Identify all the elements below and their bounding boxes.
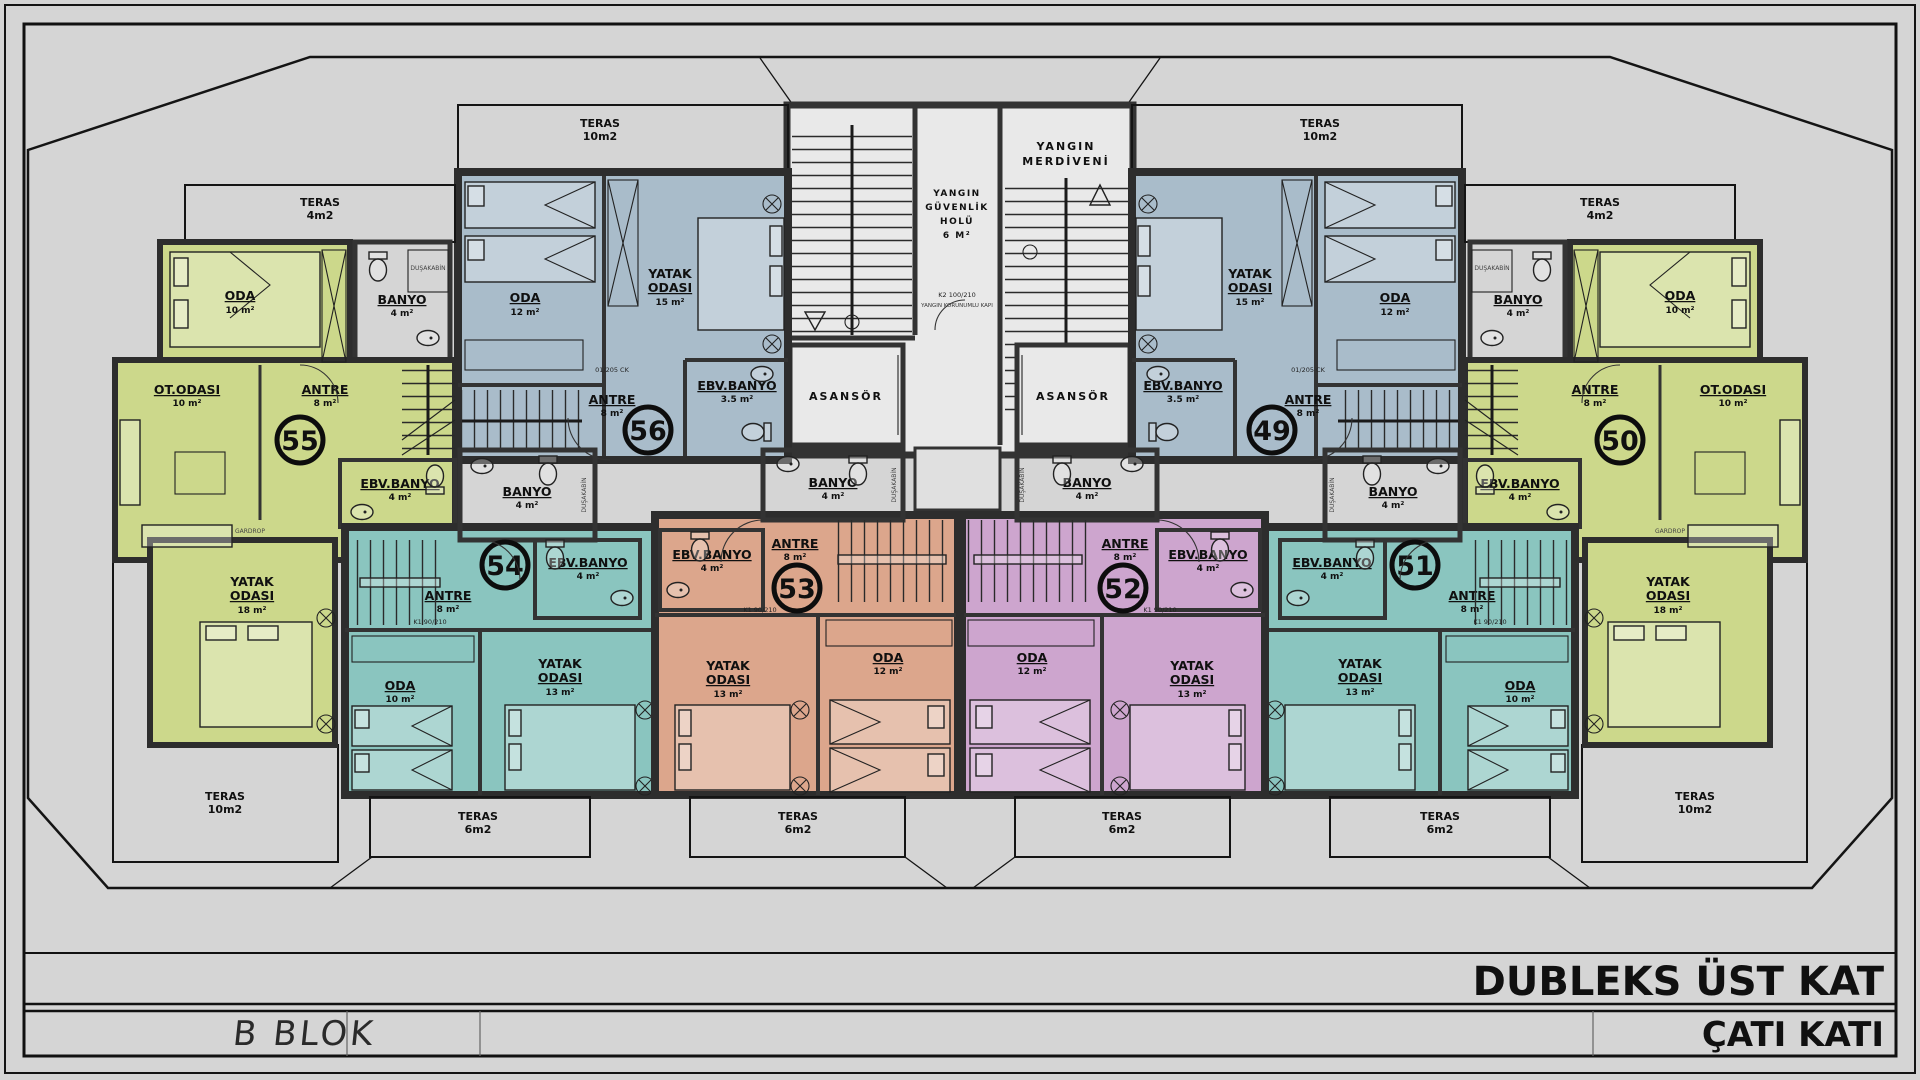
elevator-right-label: ASANSÖR	[1036, 389, 1110, 403]
apt50-antre-area: 8 m²	[1584, 399, 1607, 409]
apt54-teras-area: 6m2	[465, 823, 492, 836]
fire-door-note: YANGIN KORUNUMLU KAPI	[920, 303, 993, 309]
apt56-yatak-name2: ODASI	[648, 280, 692, 295]
apt54-ebv-area: 4 m²	[577, 572, 600, 582]
apt56-teras-name: TERAS	[580, 117, 620, 130]
elevator-left: ASANSÖR	[790, 345, 903, 445]
apt56-yatak-area: 15 m²	[656, 298, 685, 308]
apt53-ebv-name: EBV.BANYO	[672, 547, 751, 562]
apt49-door-label: 01/205 CK	[1291, 366, 1325, 374]
apt53-door-label: K1 90/210	[743, 606, 776, 614]
apt51-banyo-name: BANYO	[1369, 484, 1418, 499]
apt50-oda-area: 10 m²	[1666, 306, 1695, 316]
apt53-stairs	[830, 520, 955, 602]
apt50-ebv-area: 4 m²	[1509, 493, 1532, 503]
apt51-banyo-area: 4 m²	[1382, 501, 1405, 511]
apt51-ebv-area: 4 m²	[1321, 572, 1344, 582]
apartment-52: BANYO 4 m² DUŞAKABİN EBV.BANYO 4 m² ANTR…	[962, 450, 1265, 857]
apt55-yatak-area: 18 m²	[238, 606, 267, 616]
apt51-yatak-name1: YATAK	[1337, 656, 1383, 671]
apt54-stairs	[352, 540, 447, 625]
apt53-banyo-area: 4 m²	[822, 492, 845, 502]
apt55-teras-top-area: 4m2	[307, 209, 334, 222]
fire-hall-area: 6 M²	[943, 231, 971, 241]
apartment-49-terrace	[1132, 105, 1462, 172]
apt55-oda-furniture	[170, 250, 346, 362]
apt53-oda-name: ODA	[873, 650, 904, 665]
floor-plan-sheet: DUBLEKS ÜST KAT ÇATI KATI B BLOK YANGIN …	[0, 0, 1920, 1080]
apt52-teras-area: 6m2	[1109, 823, 1136, 836]
apt51-yatak-area: 13 m²	[1346, 688, 1375, 698]
apt55-teras-top-name: TERAS	[300, 196, 340, 209]
apt53-shower-label: DUŞAKABİN	[891, 467, 898, 502]
apt55-gardrop-label: GARDROP	[235, 528, 265, 535]
apt50-banyo-name: BANYO	[1494, 292, 1543, 307]
sheet-subtitle: ÇATI KATI	[1702, 1015, 1884, 1055]
apartment-56-terrace	[458, 105, 788, 172]
apt54-yatak-name2: ODASI	[538, 670, 582, 685]
elevator-left-label: ASANSÖR	[809, 389, 883, 403]
apt54-yatak-name1: YATAK	[537, 656, 583, 671]
apt53-antre-name: ANTRE	[772, 536, 819, 551]
floor-plan-drawing: DUBLEKS ÜST KAT ÇATI KATI B BLOK YANGIN …	[0, 0, 1920, 1080]
apt52-yatak-name2: ODASI	[1170, 672, 1214, 687]
apt55-shower-label: DUŞAKABİN	[410, 265, 445, 272]
apartment-53: BANYO 4 m² DUŞAKABİN EBV.BANYO 4 m² ANTR…	[655, 450, 958, 857]
fire-stairs-label-line1: YANGIN	[1036, 140, 1096, 153]
apt50-teras-name: TERAS	[1675, 790, 1715, 803]
apt52-teras-name: TERAS	[1102, 810, 1142, 823]
apt52-yatak-name1: YATAK	[1169, 658, 1215, 673]
apt49-oda-area: 12 m²	[1381, 308, 1410, 318]
apt53-yatak-name1: YATAK	[705, 658, 751, 673]
apt49-oda-name: ODA	[1380, 290, 1411, 305]
apt49-teras-name: TERAS	[1300, 117, 1340, 130]
apt50-stairs	[1465, 365, 1518, 455]
fire-hall-line3: HOLÜ	[940, 216, 974, 227]
core-light-well	[915, 448, 1000, 510]
apt50-teras-top-area: 4m2	[1587, 209, 1614, 222]
apt51-yatak-name2: ODASI	[1338, 670, 1382, 685]
fire-hall-line1: YANGIN	[932, 189, 980, 199]
apt52-oda-area: 12 m²	[1018, 667, 1047, 677]
apt52-shower-label: DUŞAKABİN	[1019, 467, 1026, 502]
apt56-stairs	[462, 390, 582, 452]
apt50-shower-label: DUŞAKABİN	[1474, 265, 1509, 272]
apt49-yatak-furniture	[1136, 195, 1222, 353]
apt55-yatak-name2: ODASI	[230, 588, 274, 603]
apt51-yatak-furniture	[1266, 701, 1415, 795]
apt53-yatak-furniture	[675, 701, 809, 795]
apt49-antre-name: ANTRE	[1285, 392, 1332, 407]
apt52-antre-area: 8 m²	[1114, 553, 1137, 563]
apt50-yatak-name2: ODASI	[1646, 588, 1690, 603]
apt54-teras-name: TERAS	[458, 810, 498, 823]
apt51-shower-label: DUŞAKABİN	[1329, 477, 1336, 512]
apt55-yatak-name1: YATAK	[229, 574, 275, 589]
apt50-banyo-area: 4 m²	[1507, 309, 1530, 319]
apt52-yatak-furniture	[1111, 701, 1245, 795]
apt55-banyo-name: BANYO	[378, 292, 427, 307]
apt56-door-label: 01/205 CK	[595, 366, 629, 374]
apt51-teras-name: TERAS	[1420, 810, 1460, 823]
apartment-56: TERAS 10m2 ODA 12 m² YATAK	[458, 105, 788, 460]
apt54-yatak-area: 13 m²	[546, 688, 575, 698]
apt56-teras-area: 10m2	[583, 130, 617, 143]
apt54-banyo-name: BANYO	[503, 484, 552, 499]
apt54-banyo-area: 4 m²	[516, 501, 539, 511]
apt50-otodasi-area: 10 m²	[1719, 399, 1748, 409]
fire-stairs-label-line2: MERDİVENİ	[1022, 154, 1109, 168]
apt50-yatak-name1: YATAK	[1645, 574, 1691, 589]
apt55-otodasi-area: 10 m²	[173, 399, 202, 409]
apt55-otodasi-name: OT.ODASI	[154, 382, 220, 397]
apt55-stairs	[402, 365, 455, 455]
apt50-oda-furniture	[1574, 250, 1750, 362]
apt51-oda-name: ODA	[1505, 678, 1536, 693]
apt50-oda-name: ODA	[1665, 288, 1696, 303]
apt53-oda-furniture	[826, 620, 952, 792]
apt52-banyo-area: 4 m²	[1076, 492, 1099, 502]
apt55-teras-area: 10m2	[208, 803, 242, 816]
apt50-antre-name: ANTRE	[1572, 382, 1619, 397]
apartment-49: TERAS 10m2 YATAK ODASI 15 m²	[1132, 105, 1462, 460]
elevator-right: ASANSÖR	[1017, 345, 1130, 445]
apt56-ebv-area: 3.5 m²	[721, 395, 753, 405]
apt51-oda-area: 10 m²	[1506, 695, 1535, 705]
apt55-antre-name: ANTRE	[302, 382, 349, 397]
apt49-yatak-name2: ODASI	[1228, 280, 1272, 295]
apt50-teras-area: 10m2	[1678, 803, 1712, 816]
sheet-title: DUBLEKS ÜST KAT	[1473, 957, 1885, 1005]
fire-stair-left	[792, 125, 912, 335]
apt55-ebv-area: 4 m²	[389, 493, 412, 503]
apt53-yatak-name2: ODASI	[706, 672, 750, 687]
apt49-yatak-name1: YATAK	[1227, 266, 1273, 281]
apt56-oda-name: ODA	[510, 290, 541, 305]
apt55-banyo-area: 4 m²	[391, 309, 414, 319]
apt55-oda-area: 10 m²	[226, 306, 255, 316]
apt51-teras-area: 6m2	[1427, 823, 1454, 836]
apt56-antre-area: 8 m²	[601, 409, 624, 419]
apt56-oda-area: 12 m²	[511, 308, 540, 318]
apt52-antre-name: ANTRE	[1102, 536, 1149, 551]
apt52-door-label: K1 90/210	[1143, 606, 1176, 614]
apt56-number: 56	[629, 416, 667, 447]
apt52-ebv-area: 4 m²	[1197, 564, 1220, 574]
apt54-shower-label: DUŞAKABİN	[581, 477, 588, 512]
apt49-antre-area: 8 m²	[1297, 409, 1320, 419]
apt50-number: 50	[1601, 426, 1639, 457]
apt49-ebv-area: 3.5 m²	[1167, 395, 1199, 405]
apt53-ebv-area: 4 m²	[701, 564, 724, 574]
apt49-teras-area: 10m2	[1303, 130, 1337, 143]
apt54-oda-area: 10 m²	[386, 695, 415, 705]
apt53-oda-area: 12 m²	[874, 667, 903, 677]
apt50-otodasi-name: OT.ODASI	[1700, 382, 1766, 397]
apt56-antre-name: ANTRE	[589, 392, 636, 407]
apt51-door-label: K1 90/210	[1473, 618, 1506, 626]
apt53-teras-name: TERAS	[778, 810, 818, 823]
apt49-yatak-area: 15 m²	[1236, 298, 1265, 308]
apt53-yatak-area: 13 m²	[714, 690, 743, 700]
apt52-number: 52	[1104, 574, 1142, 605]
apt52-oda-name: ODA	[1017, 650, 1048, 665]
apt54-yatak-furniture	[505, 701, 654, 795]
apt56-yatak-furniture	[698, 195, 784, 353]
apt50-teras-top-name: TERAS	[1580, 196, 1620, 209]
apt55-antre-area: 8 m²	[314, 399, 337, 409]
apt50-gardrop-label: GARDROP	[1655, 528, 1685, 535]
apt55-teras-name: TERAS	[205, 790, 245, 803]
apt54-oda-name: ODA	[385, 678, 416, 693]
apt51-stairs	[1473, 540, 1568, 625]
apt52-ebv-name: EBV.BANYO	[1168, 547, 1247, 562]
fire-hall-line2: GÜVENLİK	[925, 202, 988, 213]
apt52-oda-furniture	[968, 620, 1094, 792]
apt55-number: 55	[281, 426, 319, 457]
apt56-yatak-name1: YATAK	[647, 266, 693, 281]
apt49-number: 49	[1253, 416, 1291, 447]
apt50-yatak-area: 18 m²	[1654, 606, 1683, 616]
apt54-door-label: K1 90/210	[413, 618, 446, 626]
apt52-yatak-area: 13 m²	[1178, 690, 1207, 700]
apt53-teras-area: 6m2	[785, 823, 812, 836]
fire-door-size: K2 100/210	[938, 291, 975, 299]
apt55-oda-name: ODA	[225, 288, 256, 303]
apt49-stairs	[1338, 390, 1458, 452]
apt53-antre-area: 8 m²	[784, 553, 807, 563]
apt52-stairs	[965, 520, 1090, 602]
block-label: B BLOK	[231, 1014, 377, 1054]
apt53-number: 53	[778, 574, 816, 605]
